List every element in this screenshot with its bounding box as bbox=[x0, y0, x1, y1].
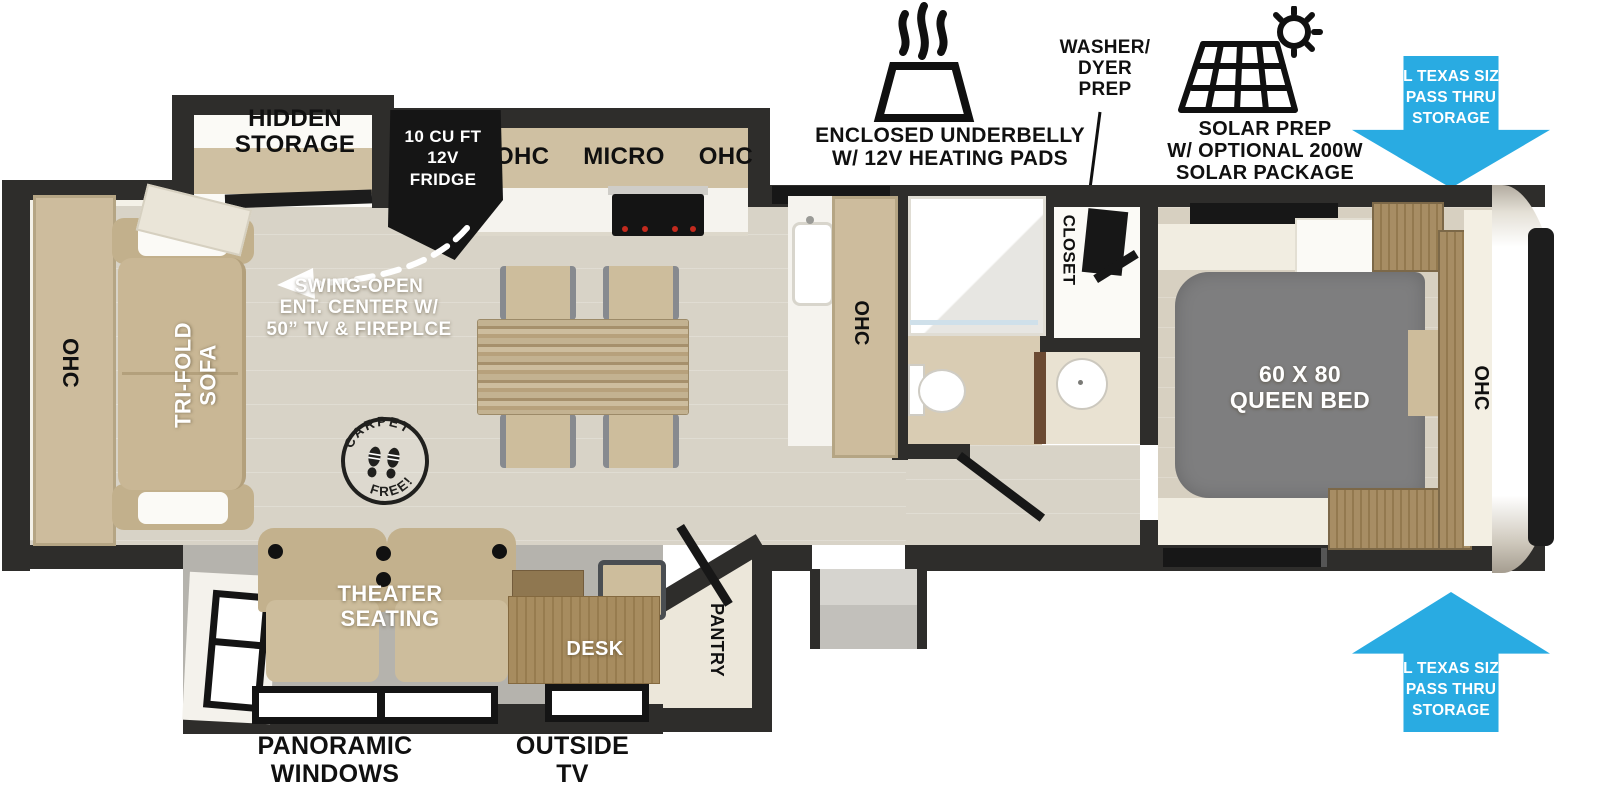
panoramic-window bbox=[378, 686, 498, 724]
bedroom-bottom-window bbox=[1163, 548, 1327, 567]
solar-label: SOLAR PREP W/ OPTIONAL 200W SOLAR PACKAG… bbox=[1125, 118, 1405, 184]
wall-segment bbox=[905, 545, 1145, 571]
ohc-label: OHC bbox=[495, 144, 549, 170]
solar-panel-sun-icon bbox=[1175, 6, 1325, 118]
ohc-label: OHC bbox=[699, 144, 753, 170]
cupholder bbox=[268, 544, 283, 559]
sink-drain bbox=[1078, 380, 1083, 385]
outside-tv-window bbox=[545, 684, 649, 722]
wall-segment bbox=[1140, 520, 1158, 548]
entry-steps bbox=[810, 569, 927, 649]
shower-glass bbox=[910, 320, 1038, 325]
toilet-bowl bbox=[918, 369, 966, 413]
wall-segment bbox=[752, 545, 772, 731]
vanity-backsplash bbox=[1034, 352, 1046, 444]
wall-segment bbox=[648, 708, 772, 732]
dinette-chair bbox=[500, 414, 576, 468]
cooktop-knob bbox=[622, 226, 628, 232]
kitchen-sink bbox=[792, 222, 834, 306]
rear-ohc-label: OHC bbox=[58, 338, 82, 388]
blue-arrow-up-icon: XL TEXAS SIZE PASS THRU STORAGE bbox=[1352, 592, 1550, 732]
ent-center-label: SWING-OPEN ENT. CENTER W/ 50” TV & FIREP… bbox=[243, 276, 475, 340]
hidden-storage-label: HIDDEN STORAGE bbox=[205, 106, 385, 159]
cooktop-knob bbox=[672, 226, 678, 232]
washer-dryer-label: WASHER/ DYER PREP bbox=[1040, 38, 1170, 101]
dinette-chair bbox=[603, 266, 679, 320]
wall-segment bbox=[1040, 338, 1140, 352]
dinette-chair bbox=[500, 266, 576, 320]
desk-label: DESK bbox=[540, 638, 650, 660]
panoramic-windows-label: PANORAMIC WINDOWS bbox=[225, 733, 445, 788]
cooktop-knob bbox=[690, 226, 696, 232]
theater-seating-label: THEATER SEATING bbox=[295, 582, 485, 631]
dinette-chair bbox=[603, 414, 679, 468]
front-cap-window bbox=[1528, 228, 1554, 546]
bedroom-bottom-wardrobe bbox=[1328, 488, 1444, 550]
shower bbox=[908, 196, 1046, 336]
rv-floorplan-diagram: ENCLOSED UNDERBELLY W/ 12V HEATING PADS … bbox=[0, 0, 1600, 791]
cooktop-knob bbox=[642, 226, 648, 232]
hallway-floor bbox=[906, 445, 1140, 545]
bedroom-ohc-label: OHC bbox=[1470, 365, 1492, 410]
dining-table bbox=[478, 320, 688, 414]
cupholder bbox=[376, 546, 391, 561]
sofa-label: TRI-FOLD SOFA bbox=[171, 322, 220, 428]
queen-bed-label: 60 X 80 QUEEN BED bbox=[1215, 362, 1385, 414]
panoramic-window bbox=[252, 686, 384, 724]
kitchen-ohc-label: OHC bbox=[850, 300, 872, 345]
outside-tv-label: OUTSIDE TV bbox=[490, 733, 655, 788]
closet-label: CLOSET bbox=[1059, 215, 1078, 286]
fridge-label: 10 CU FT 12V FRIDGE bbox=[388, 126, 498, 190]
bedroom-top-wardrobe bbox=[1372, 202, 1444, 272]
pass-thru-bottom-label: XL TEXAS SIZE PASS THRU STORAGE bbox=[1352, 592, 1550, 721]
bedroom-top-dresser bbox=[1295, 218, 1376, 274]
wall-segment bbox=[1140, 190, 1158, 445]
cupholder bbox=[492, 544, 507, 559]
sofa-pillow bbox=[138, 492, 228, 524]
faucet bbox=[806, 216, 814, 224]
micro-label: MICRO bbox=[583, 144, 665, 170]
kitchen-overhead-label: OHC MICRO OHC bbox=[495, 144, 753, 170]
pantry-label: PANTRY bbox=[706, 603, 726, 677]
wall-segment bbox=[2, 545, 183, 569]
heating-pad-icon bbox=[855, 2, 990, 124]
wall-segment bbox=[2, 180, 30, 571]
